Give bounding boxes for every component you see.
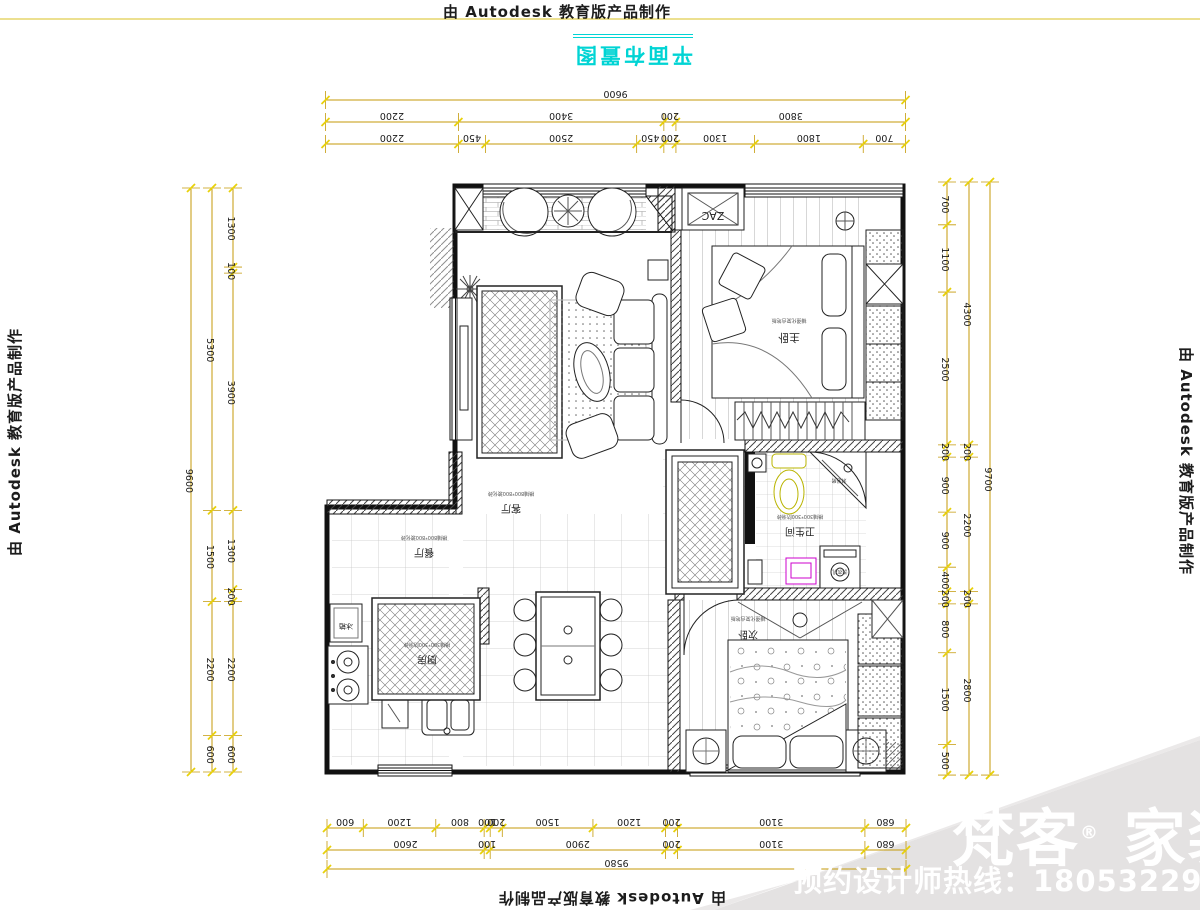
dim-value: 600 bbox=[336, 816, 354, 827]
dim-value: 9700 bbox=[982, 467, 993, 491]
dim-value: 3100 bbox=[759, 816, 783, 827]
dim-value: 9600 bbox=[183, 469, 194, 493]
dim-value: 450 bbox=[641, 132, 659, 143]
dim-value: 400 bbox=[939, 571, 950, 589]
dim-right-inner: 700110025002009009004002008001500500 bbox=[938, 178, 956, 779]
tv-cabinet bbox=[457, 298, 472, 440]
room-note-kitchen: 横铺300*300防滑砖 bbox=[404, 641, 451, 648]
dim-left-inner: 1300100390013002002200600 bbox=[224, 184, 242, 776]
dim-value: 200 bbox=[661, 110, 679, 121]
room-note-living: 横铺800*800玻化砖 bbox=[488, 490, 535, 497]
dim-value: 3100 bbox=[759, 838, 783, 849]
room-note-dining: 横铺800*800玻化砖 bbox=[401, 534, 448, 541]
dim-value: 1200 bbox=[617, 816, 641, 827]
dim-value: 800 bbox=[451, 816, 469, 827]
dim-left-overall: 9600 bbox=[182, 184, 200, 776]
dim-value: 2500 bbox=[939, 357, 950, 381]
dim-value: 200 bbox=[662, 838, 680, 849]
dim-value: 2500 bbox=[549, 132, 573, 143]
dining-set bbox=[514, 592, 622, 700]
dim-value: 200 bbox=[939, 443, 950, 461]
dim-value: 3800 bbox=[779, 110, 803, 121]
dim-value: 500 bbox=[939, 752, 950, 770]
shower-label: 淋浴房 bbox=[831, 477, 846, 484]
ac-unit-label: ZAC bbox=[701, 209, 724, 222]
dim-value: 700 bbox=[939, 195, 950, 213]
room-label-kitchen: 厨房 bbox=[417, 653, 437, 666]
dim-value: 700 bbox=[875, 132, 893, 143]
dim-value: 200 bbox=[225, 587, 236, 605]
dim-value: 1500 bbox=[536, 816, 560, 827]
dim-value: 1100 bbox=[939, 247, 950, 271]
cutting-board bbox=[382, 698, 408, 728]
dim-value: 800 bbox=[939, 620, 950, 638]
dim-value: 9580 bbox=[604, 857, 628, 868]
dim-value: 600 bbox=[225, 746, 236, 764]
room-label-master-bedroom: 主卧 bbox=[778, 331, 800, 344]
dim-value: 200 bbox=[961, 590, 972, 608]
dim-right-mid: 430020022002002800 bbox=[960, 178, 978, 779]
dim-value: 2200 bbox=[225, 657, 236, 681]
kitchen-sink bbox=[422, 695, 474, 735]
dim-value: 2200 bbox=[380, 132, 404, 143]
dim-value: 200 bbox=[939, 590, 950, 608]
dim-value: 1500 bbox=[204, 545, 215, 569]
dim-value: 9600 bbox=[603, 88, 627, 99]
dim-left-mid: 530015002200600 bbox=[203, 184, 221, 776]
hallway-medallion bbox=[666, 450, 744, 594]
exterior-hatch-left bbox=[430, 228, 454, 308]
kitchen-medallion bbox=[372, 598, 480, 700]
dim-top-mid: 220034002003800 bbox=[322, 110, 910, 131]
washing-machine bbox=[820, 546, 860, 588]
room-label-dining: 餐厅 bbox=[414, 546, 434, 559]
room-label-bathroom: 卫生间 bbox=[785, 525, 815, 538]
toilet bbox=[772, 454, 806, 514]
dim-value: 4300 bbox=[961, 302, 972, 326]
dim-value: 680 bbox=[876, 838, 894, 849]
dim-value: 450 bbox=[463, 132, 481, 143]
dim-value: 1800 bbox=[797, 132, 821, 143]
fridge-label: 冰箱 bbox=[339, 622, 353, 631]
watermark-top: 由 Autodesk 教育版产品制作 bbox=[443, 1, 671, 22]
watermark-left: 由 Autodesk 教育版产品制作 bbox=[4, 328, 25, 556]
dim-value: 2900 bbox=[566, 838, 590, 849]
washing-machine-label: 洗衣机 bbox=[832, 568, 847, 575]
watermark-right: 由 Autodesk 教育版产品制作 bbox=[1176, 347, 1197, 575]
dim-top-overall: 9600 bbox=[322, 88, 910, 109]
floor-plan-art bbox=[327, 184, 903, 776]
dim-bottom-inner: 6001200800100200150012002003100680 bbox=[323, 816, 910, 837]
dim-value: 2200 bbox=[204, 657, 215, 681]
dim-bottom-mid: 260010029002003100680 bbox=[323, 838, 910, 859]
watermark-bottom: 由 Autodesk 教育版产品制作 bbox=[498, 888, 726, 909]
dim-top-inner: 2200450250045020013001800700 bbox=[322, 132, 910, 153]
dim-value: 1500 bbox=[939, 688, 950, 712]
dim-right-overall: 9700 bbox=[981, 178, 999, 779]
dim-value: 900 bbox=[939, 477, 950, 495]
dim-value: 2200 bbox=[961, 513, 972, 537]
designer-hotline: 预约设计师热线：18053229526 bbox=[793, 858, 1200, 900]
drawing-title-wrap: 平面布置图 bbox=[548, 34, 718, 71]
stove bbox=[328, 646, 368, 704]
dim-value: 600 bbox=[204, 746, 215, 764]
dim-value: 5300 bbox=[204, 338, 215, 362]
dim-value: 2200 bbox=[380, 110, 404, 121]
dim-value: 1200 bbox=[387, 816, 411, 827]
room-note-bedroom2: 铺强化复合地板 bbox=[730, 615, 765, 622]
dim-value: 3400 bbox=[549, 110, 573, 121]
registered-mark: ® bbox=[1080, 822, 1100, 843]
dim-value: 100 bbox=[478, 838, 496, 849]
drawing-title: 平面布置图 bbox=[573, 34, 693, 71]
ac-unit-box bbox=[682, 188, 744, 230]
floor-plan-drawing: 9600220034002003800220045025004502001300… bbox=[0, 0, 1200, 910]
dim-value: 200 bbox=[961, 443, 972, 461]
dim-value: 2800 bbox=[961, 678, 972, 702]
room-note-master-bedroom: 铺强化复合地板 bbox=[771, 317, 806, 324]
room-label-bedroom2: 次卧 bbox=[738, 628, 758, 641]
dim-value: 200 bbox=[661, 132, 679, 143]
highlight-box bbox=[786, 558, 816, 584]
dim-value: 200 bbox=[487, 816, 505, 827]
dim-value: 1300 bbox=[225, 539, 236, 563]
dim-value: 900 bbox=[939, 532, 950, 550]
dim-value: 2600 bbox=[393, 838, 417, 849]
dim-value: 1300 bbox=[225, 216, 236, 240]
room-label-living: 客厅 bbox=[501, 502, 521, 515]
dim-value: 3900 bbox=[225, 381, 236, 405]
room-note-bathroom: 横铺300*300防滑砖 bbox=[777, 513, 824, 520]
dim-value: 100 bbox=[225, 262, 236, 280]
dim-value: 200 bbox=[662, 816, 680, 827]
closet-rail bbox=[735, 402, 865, 440]
dim-value: 1300 bbox=[703, 132, 727, 143]
living-room bbox=[456, 260, 668, 461]
dim-value: 680 bbox=[876, 816, 894, 827]
